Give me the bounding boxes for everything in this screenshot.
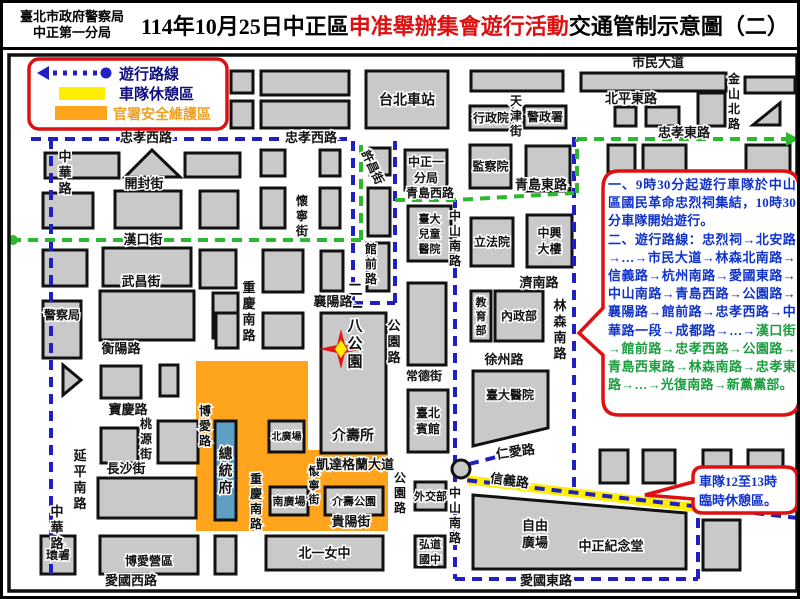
city-block <box>261 188 285 228</box>
building-label: 北一女中 <box>298 546 350 561</box>
building-label: 警察局 <box>43 307 80 322</box>
title-part3: 交通管制示意圖（二） <box>569 14 789 39</box>
street-label: 北平東路 <box>605 91 658 106</box>
street-label: 懷寧街 <box>295 193 308 238</box>
city-block <box>125 150 180 177</box>
agency-name: 臺北市政府警察局 中正第一分局 <box>3 9 141 42</box>
legend-security-swatch <box>55 106 107 120</box>
legend: 遊行路線 車隊休憩區 官署安全維護區 <box>29 59 227 129</box>
city-block <box>321 251 343 291</box>
city-block <box>608 145 635 172</box>
agency-line1: 臺北市政府警察局 <box>3 9 141 25</box>
building-臺大醫院 <box>473 371 548 446</box>
route-arrowhead <box>786 132 799 146</box>
street-label: 仁愛路 <box>495 441 537 461</box>
city-block <box>698 93 725 126</box>
street-label: 介壽所 <box>331 427 374 444</box>
street-label: 襄陽路 <box>312 294 353 309</box>
city-block <box>320 150 340 176</box>
title-part1: 114年10月25日中正區 <box>141 14 349 39</box>
street-label: 林森南路 <box>553 298 567 361</box>
city-block <box>200 191 238 228</box>
route-notes-text: 一、9時30分起遊行車隊於中山區國民革命忠烈祠集結，10時30分車隊開始遊行。 … <box>608 176 796 394</box>
legend-route-dot-icon <box>101 68 112 79</box>
building-label: 中正紀念堂 <box>578 539 643 554</box>
building-label: 警政署 <box>526 109 563 124</box>
city-block <box>100 291 194 340</box>
building-label: 博愛營區 <box>125 553 173 568</box>
street-label: 桃源街 <box>139 416 152 461</box>
street-label: 中華路 <box>50 504 64 551</box>
city-block <box>615 107 636 126</box>
street-label: 館前路 <box>364 241 378 286</box>
street-label: 忠孝西路 <box>285 130 338 145</box>
street-label: 長沙街 <box>106 461 145 476</box>
rest-callout-text: 車隊12至13時 臨時休憩區。 <box>699 472 796 510</box>
city-block <box>101 366 141 398</box>
street-label: 常德街 <box>406 368 442 383</box>
city-block <box>261 71 349 95</box>
street-label: 金山北路 <box>727 71 741 131</box>
street-label: 愛國東路 <box>520 573 573 588</box>
street-label: 公園路 <box>394 471 407 515</box>
city-block <box>185 153 240 177</box>
city-block <box>261 150 285 176</box>
legend-security-label: 官署安全維護區 <box>113 106 211 123</box>
building-label: 外交部 <box>413 489 447 503</box>
street-label: 愛國西路 <box>105 573 158 588</box>
building-label: 臺大兒童醫院 <box>419 211 441 255</box>
city-block <box>643 145 686 172</box>
city-block <box>263 313 303 348</box>
city-block <box>261 101 349 128</box>
city-block <box>63 365 81 395</box>
city-block <box>471 71 563 91</box>
city-block <box>158 421 198 463</box>
street-label: 開封街 <box>124 176 163 191</box>
street-label: 市民大道 <box>632 55 684 70</box>
building-label: 教育部 <box>475 295 488 337</box>
city-block <box>98 478 196 518</box>
city-block <box>45 153 119 178</box>
city-block <box>581 73 726 91</box>
page-title: 114年10月25日中正區申准舉辦集會遊行活動交通管制示意圖（二） <box>141 9 797 41</box>
city-block <box>263 250 303 292</box>
city-block <box>115 191 181 228</box>
building-label: 行政院 <box>472 110 509 125</box>
city-block <box>231 71 253 93</box>
street-label: 青島東路 <box>515 177 568 192</box>
city-block <box>231 101 253 128</box>
building-label: 立法院 <box>474 234 510 249</box>
city-block <box>216 313 238 348</box>
city-block <box>215 536 236 574</box>
city-block <box>320 188 340 228</box>
city-block <box>101 428 138 463</box>
building-label: 內政部 <box>501 308 537 323</box>
street-label: 重慶南路 <box>242 280 256 343</box>
city-block <box>745 77 795 93</box>
title-bar: 臺北市政府警察局 中正第一分局 114年10月25日中正區申准舉辦集會遊行活動交… <box>3 3 797 50</box>
street-label: 徐州路 <box>483 352 524 367</box>
building-label: 介壽公園 <box>331 494 376 508</box>
street-label: 中華路 <box>58 149 72 196</box>
building-中興大樓 <box>527 215 572 267</box>
notes-paragraph-1: 一、9時30分起遊行車隊於中山區國民革命忠烈祠集結，10時30分車隊開始遊行。 <box>608 176 796 231</box>
city-block <box>646 107 679 126</box>
notes-paragraph-2: 二、遊行路線：忠烈祠→北安路→…→市民大道→林森北南路→信義路→杭州南路→愛國東… <box>608 231 796 395</box>
city-block <box>368 188 390 236</box>
building-label: 北廣場 <box>272 430 302 443</box>
title-part2-red: 申准舉辦集會遊行活動 <box>349 14 569 39</box>
legend-rest-swatch <box>59 87 105 100</box>
building-臺北賓館 <box>408 390 448 452</box>
street-label: 公園路 <box>387 318 401 365</box>
city-block <box>703 520 740 570</box>
city-block <box>408 283 446 365</box>
traffic-control-map-page: 臺北市政府警察局 中正第一分局 114年10月25日中正區申准舉辦集會遊行活動交… <box>0 0 800 599</box>
street-label: 忠孝東路 <box>658 125 711 140</box>
street-label: 凱達格蘭大道 <box>316 457 394 472</box>
building-label: 總統府 <box>219 445 233 496</box>
street-label: 博愛路 <box>199 403 212 448</box>
callout-line1: 車隊12至13時 <box>699 472 796 491</box>
street-label: 青島西路 <box>406 185 455 200</box>
city-block <box>753 103 780 125</box>
city-block <box>200 250 236 288</box>
street-label: 濟南路 <box>519 275 559 290</box>
city-block <box>160 365 178 396</box>
roundabout <box>452 460 470 478</box>
street-label: 漢口街 <box>123 232 162 247</box>
city-block <box>600 450 628 483</box>
city-block <box>643 450 675 483</box>
city-block <box>746 145 790 172</box>
agency-line2: 中正第一分局 <box>3 25 141 41</box>
street-label: 寶慶路 <box>108 402 148 417</box>
street-label: 忠孝西路 <box>120 130 173 145</box>
street-label: 天津街 <box>509 94 523 138</box>
callout-line2: 臨時休憩區。 <box>699 491 796 510</box>
legend-rest-label: 車隊休憩區 <box>119 85 194 103</box>
street-label: 貴陽街 <box>331 514 370 529</box>
building-label: 南廣場 <box>273 494 306 508</box>
legend-route-label: 遊行路線 <box>119 65 179 83</box>
street-label: 衡陽路 <box>101 341 141 356</box>
street-label: 武昌街 <box>121 274 160 289</box>
building-label: 臺大醫院 <box>486 387 534 402</box>
building-label: 台北車站 <box>379 91 435 108</box>
building-label: 監察院 <box>472 159 508 174</box>
street-label: 延平南路 <box>72 448 87 511</box>
